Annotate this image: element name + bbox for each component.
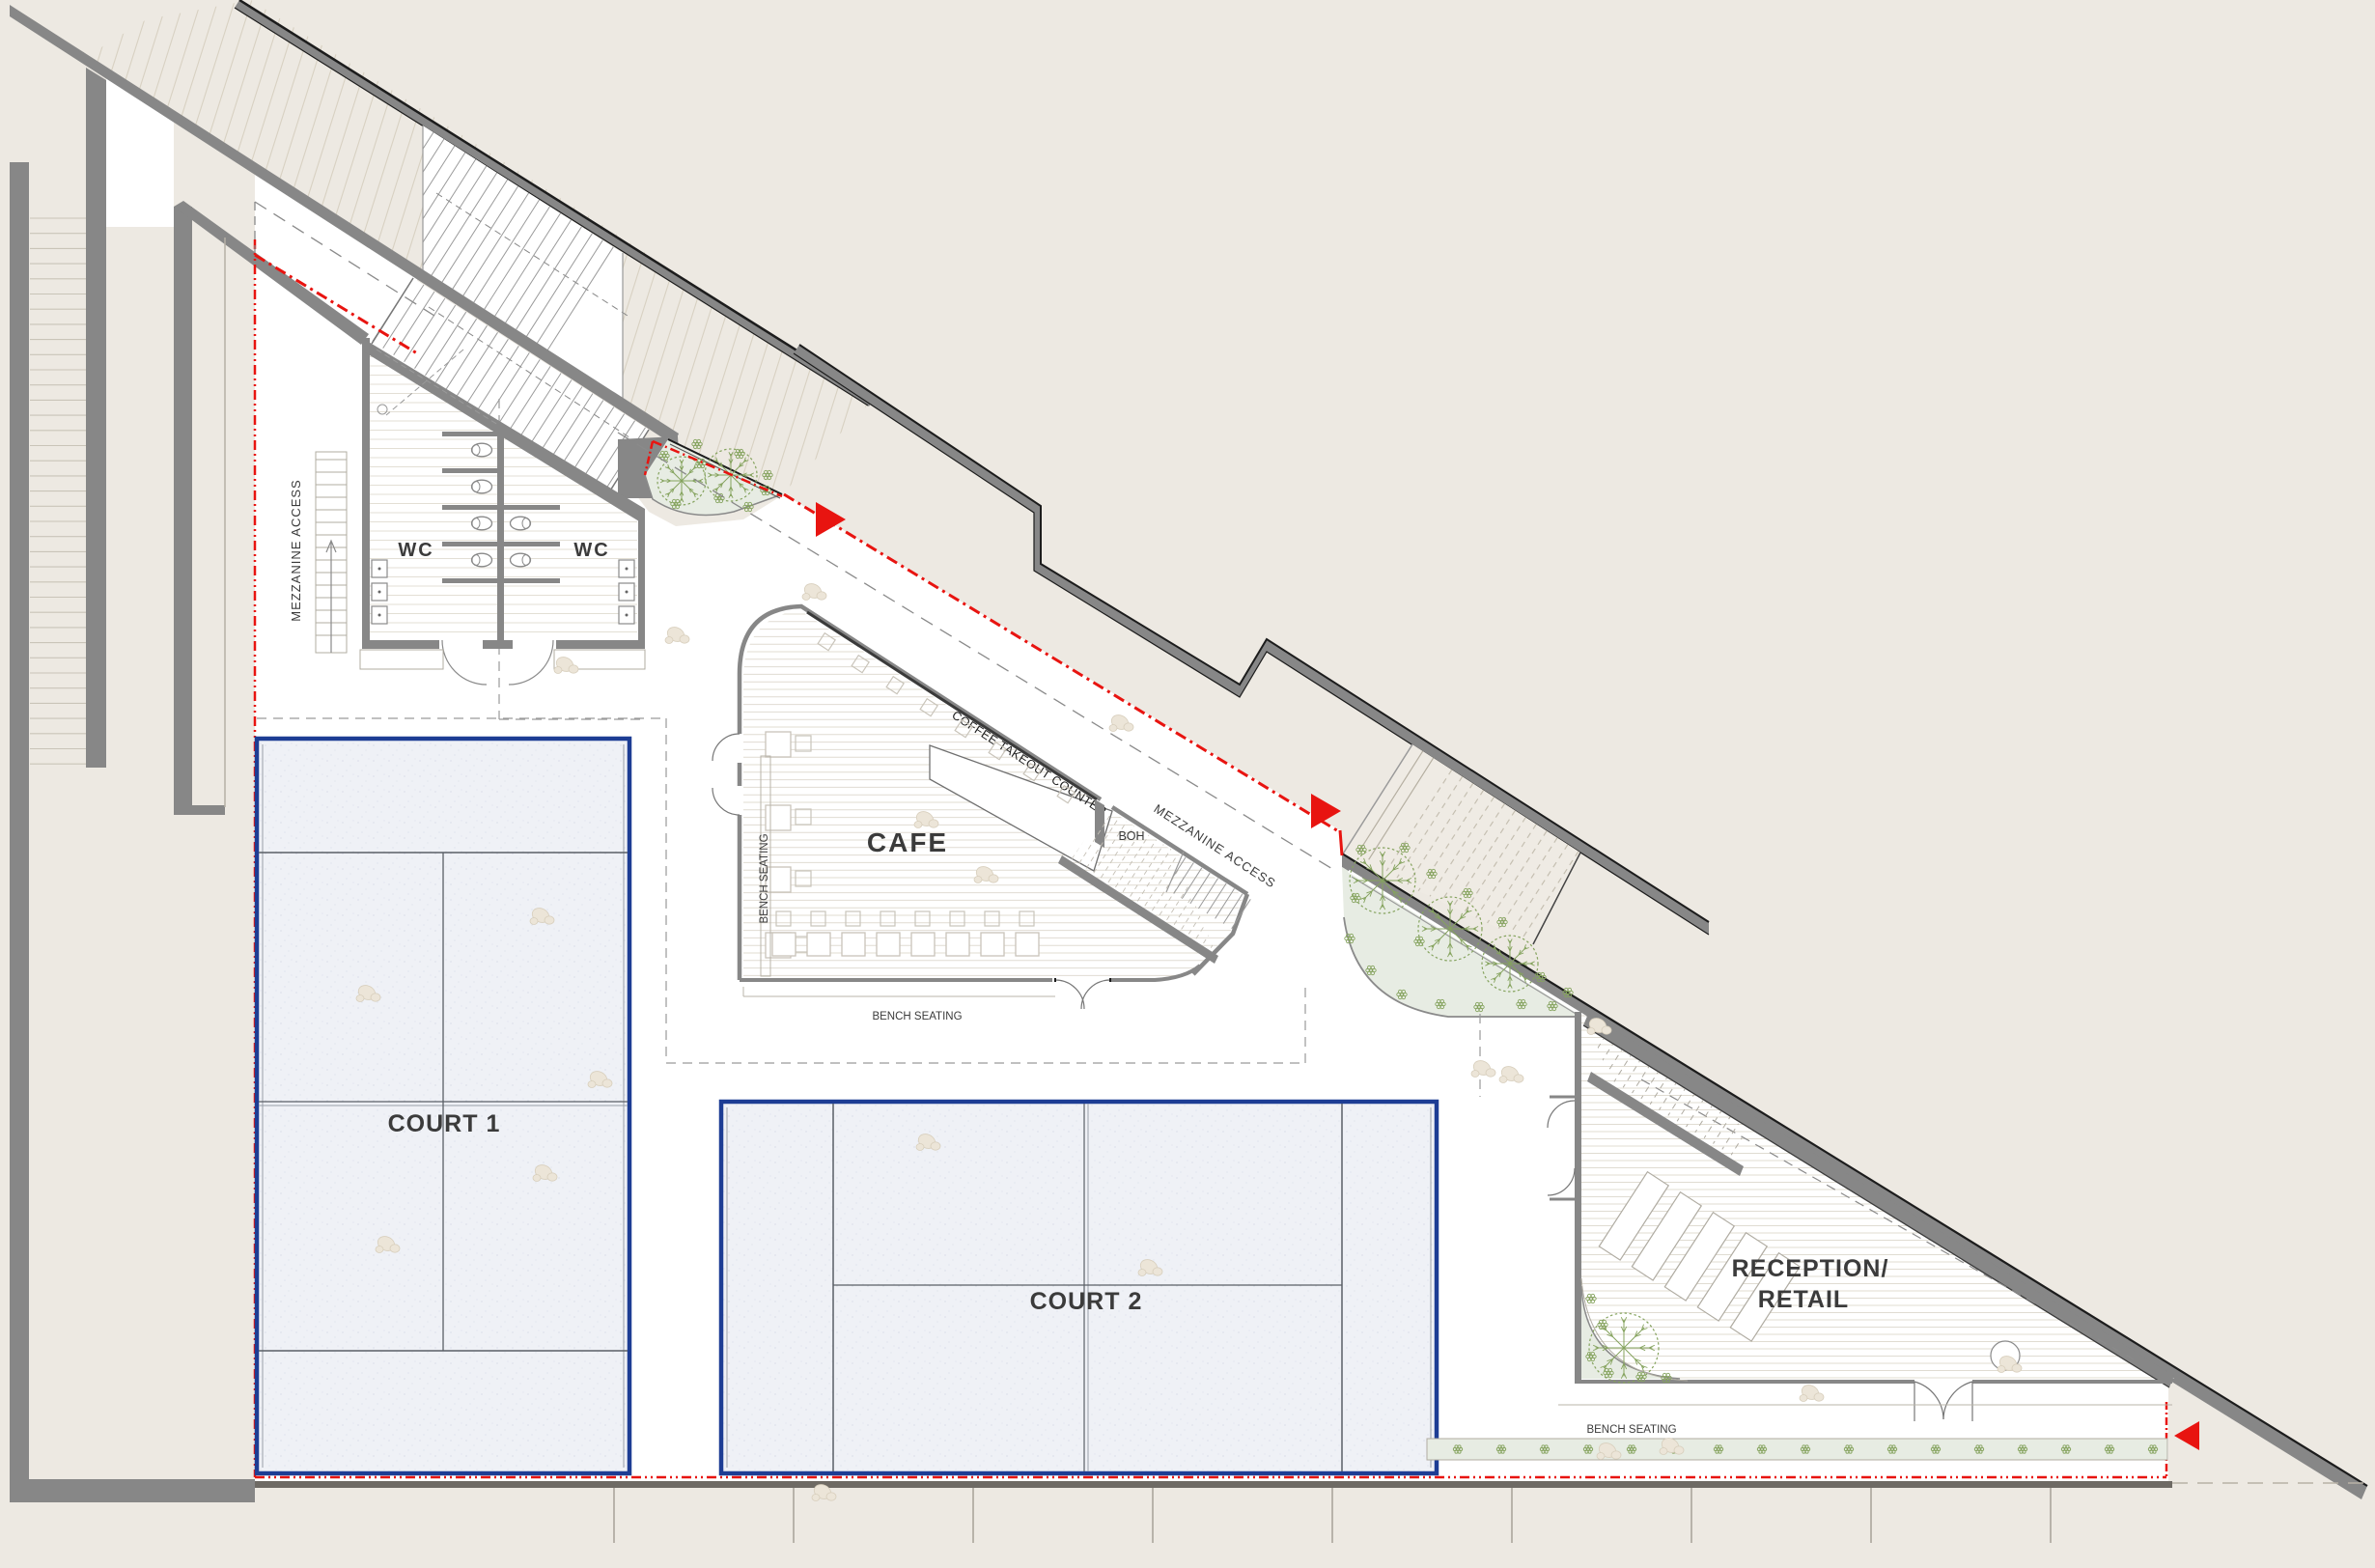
- svg-text:WC: WC: [573, 540, 609, 561]
- svg-text:RECEPTION/: RECEPTION/: [1732, 1255, 1889, 1282]
- svg-text:COURT 1: COURT 1: [388, 1110, 501, 1137]
- svg-text:BENCH SEATING: BENCH SEATING: [1586, 1424, 1676, 1436]
- svg-text:CAFE: CAFE: [867, 827, 948, 857]
- svg-text:MEZZANINE ACCESS: MEZZANINE ACCESS: [289, 479, 303, 621]
- svg-text:BOH: BOH: [1118, 829, 1144, 843]
- svg-text:COURT 2: COURT 2: [1030, 1288, 1143, 1315]
- svg-text:BENCH SEATING: BENCH SEATING: [872, 1011, 962, 1022]
- svg-text:WC: WC: [398, 540, 433, 561]
- svg-text:BENCH SEATING: BENCH SEATING: [759, 833, 770, 923]
- svg-text:RETAIL: RETAIL: [1758, 1286, 1849, 1313]
